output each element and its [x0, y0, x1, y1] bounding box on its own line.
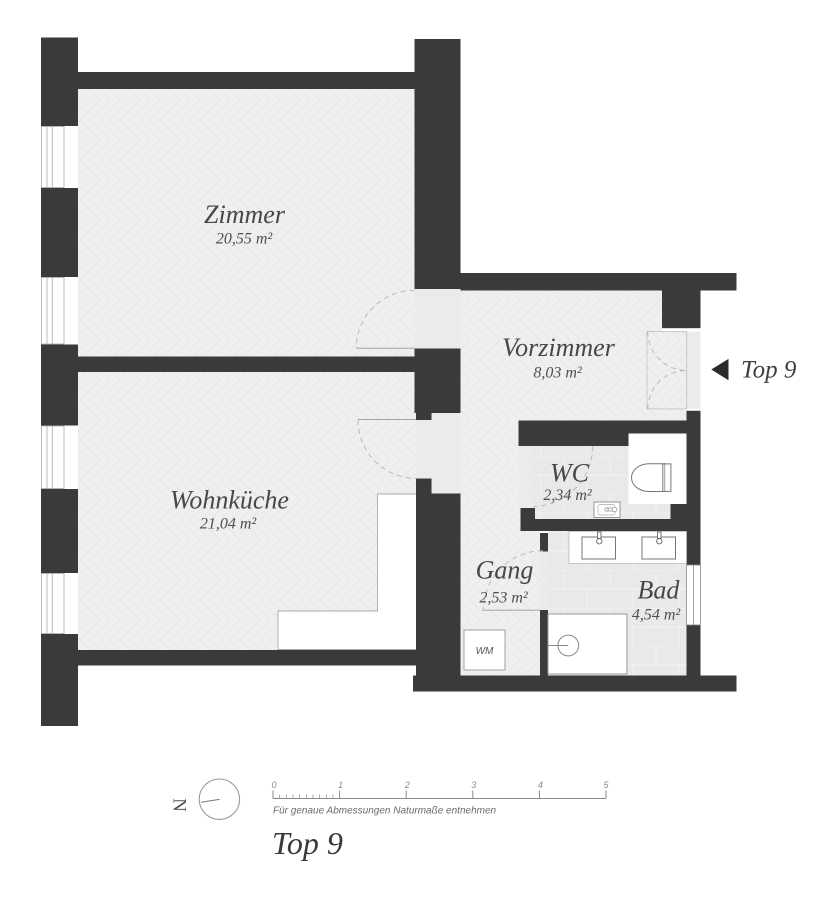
svg-text:21,04 m²: 21,04 m²	[200, 516, 258, 533]
svg-text:1: 1	[338, 780, 343, 790]
svg-text:Top 9: Top 9	[741, 357, 797, 384]
svg-text:4,54 m²: 4,54 m²	[632, 606, 682, 623]
svg-text:2,53 m²: 2,53 m²	[479, 589, 529, 606]
svg-text:N: N	[168, 798, 189, 812]
svg-text:Vorzimmer: Vorzimmer	[502, 333, 616, 362]
svg-text:Zimmer: Zimmer	[204, 200, 286, 229]
svg-text:4: 4	[538, 780, 543, 790]
svg-text:WC: WC	[550, 459, 590, 488]
svg-text:Für genaue Abmessungen Naturma: Für genaue Abmessungen Naturmaße entnehm…	[273, 806, 497, 817]
svg-text:2,34 m²: 2,34 m²	[543, 487, 593, 504]
svg-text:20,55 m²: 20,55 m²	[216, 231, 274, 248]
svg-text:3: 3	[471, 780, 476, 790]
svg-text:WM: WM	[476, 646, 494, 657]
svg-text:Wohnküche: Wohnküche	[170, 486, 289, 515]
svg-text:Bad: Bad	[638, 576, 681, 605]
svg-text:8,03 m²: 8,03 m²	[533, 364, 583, 381]
svg-text:Top 9: Top 9	[272, 825, 343, 861]
svg-text:2: 2	[404, 780, 410, 790]
svg-text:0: 0	[271, 780, 276, 790]
svg-text:Gang: Gang	[476, 556, 534, 585]
